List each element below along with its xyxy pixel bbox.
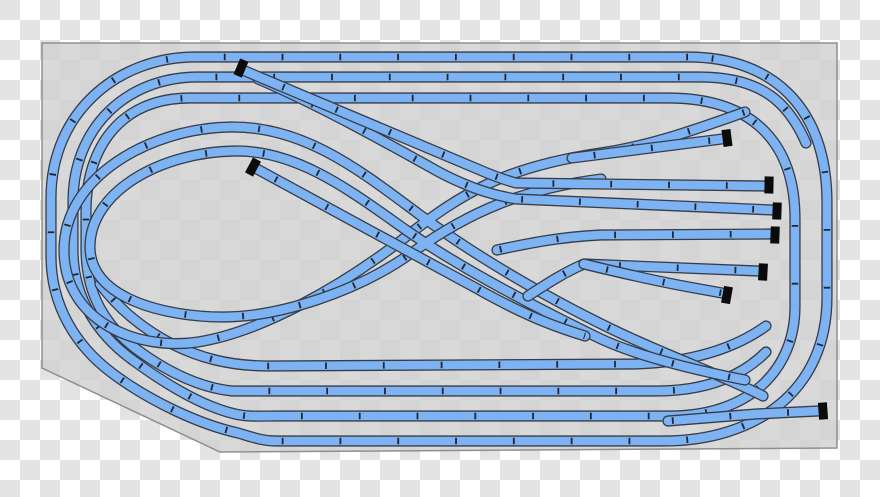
buffer-bottom-right-buffer-stop-icon — [818, 402, 828, 420]
buffer-siding-5-buffer-stop-icon — [758, 263, 768, 280]
buffer-siding-4-buffer-stop-icon — [770, 226, 780, 243]
buffer-siding-2-buffer-stop-icon — [764, 176, 773, 193]
buffer-siding-3-buffer-stop-icon — [772, 202, 782, 219]
track-plan-canvas — [0, 0, 880, 497]
model-railway-track-plan — [0, 0, 880, 497]
